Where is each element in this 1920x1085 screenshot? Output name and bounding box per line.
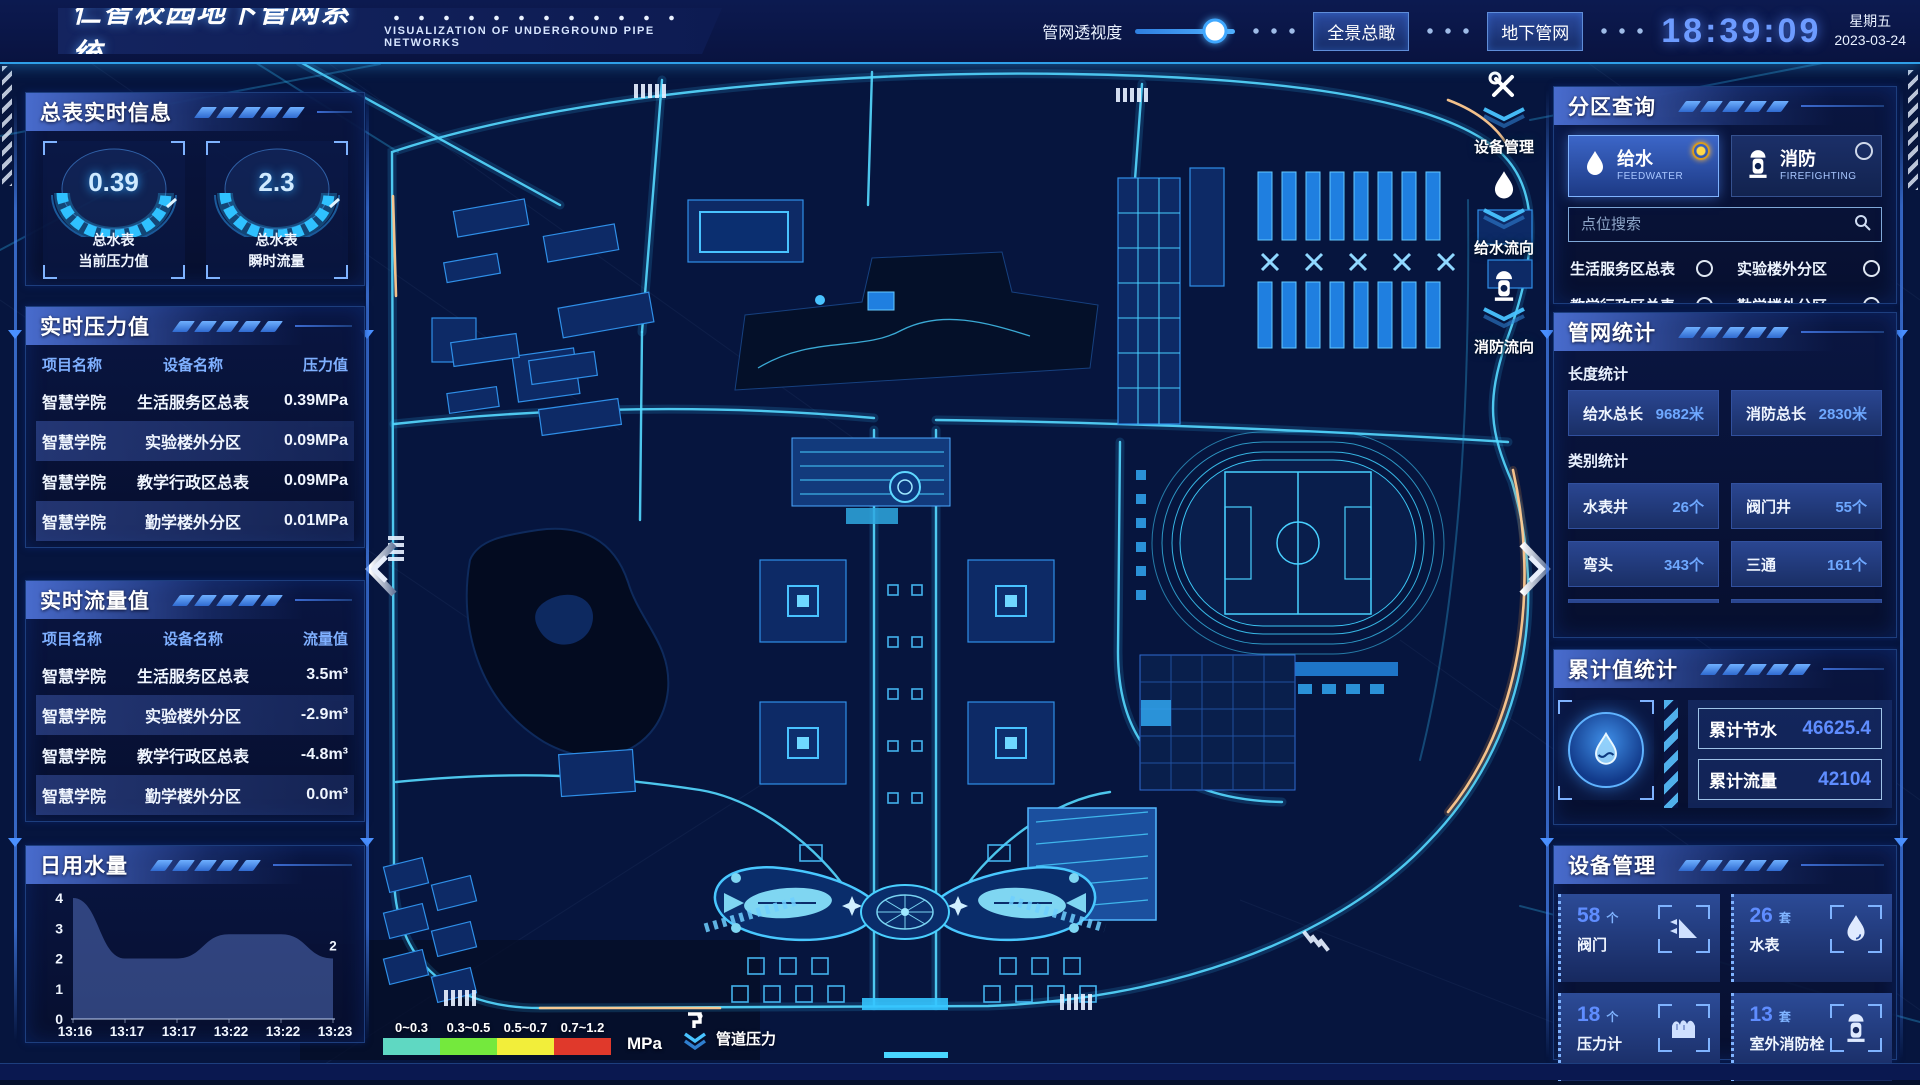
legend-unit: MPa — [627, 1034, 662, 1054]
firefighting-toggle[interactable]: 消防FIREFIGHTING — [1731, 135, 1882, 197]
legend-name: 管道压力 — [716, 1028, 776, 1049]
legend-range-label: 0.7~1.2 — [561, 1020, 605, 1035]
dashboard-root: { "header": { "title": "仁智校园地下管网系统", "su… — [0, 0, 1920, 1080]
hydrant-icon — [1830, 1004, 1882, 1052]
zone-query-panel: 分区查询 给水FEEDWATER 消防FIREFIGHTING 生活服务区总表 … — [1553, 86, 1897, 304]
stat-box: 水表井26个 — [1568, 483, 1719, 529]
valve-icon — [1658, 905, 1710, 953]
legend-range-label: 0.3~0.5 — [447, 1020, 491, 1035]
panel-title: 实时压力值 — [26, 311, 150, 341]
central-plaza — [861, 885, 949, 939]
col-header: 项目名称 — [42, 628, 130, 649]
gauge-label-1: 总水表 — [206, 230, 348, 250]
dots-decor — [1422, 27, 1474, 35]
app-title: 仁智校园地下管网系统 — [72, 0, 370, 73]
svg-text:13:22: 13:22 — [266, 1024, 301, 1036]
stat-box: 阀门井55个 — [1731, 483, 1882, 529]
slashes-decor — [154, 860, 257, 871]
panel-title: 实时流量值 — [26, 585, 150, 615]
svg-text:3: 3 — [55, 920, 63, 936]
gauge-value: 2.3 — [206, 167, 348, 198]
legend-range-label: 0~0.3 — [395, 1020, 428, 1035]
gauge-label-2: 瞬时流量 — [206, 251, 348, 271]
app-title-box: 仁智校园地下管网系统 VISUALIZATION OF UNDERGROUND … — [58, 8, 722, 54]
svg-text:2: 2 — [55, 951, 63, 967]
col-header: 压力值 — [256, 354, 348, 375]
table-row: 智慧学院勤学楼外分区0.01MPa — [36, 501, 354, 541]
length-stats-label: 长度统计 — [1568, 363, 1882, 384]
gauge-pressure: 0.39 总水表当前压力值 — [43, 141, 185, 279]
legend-swatch — [383, 1038, 440, 1055]
gauge-flow: 2.3 总水表瞬时流量 — [206, 141, 348, 279]
svg-text:4: 4 — [55, 890, 63, 906]
legend-swatch — [554, 1038, 611, 1055]
daily-water-chart: 01234 13:1613:1713:1713:2213:2213:23 2 — [34, 884, 352, 1036]
bottom-bar — [0, 1063, 1920, 1080]
slashes-decor — [198, 107, 301, 118]
water-drop-icon — [1583, 149, 1607, 184]
hazard-divider-decor — [1664, 700, 1678, 808]
radio-icon[interactable] — [1863, 297, 1880, 304]
radio-icon[interactable] — [1696, 260, 1713, 277]
panel-title: 分区查询 — [1554, 91, 1656, 121]
table-row: 智慧学院生活服务区总表3.5m³ — [36, 655, 354, 695]
zone-list: 生活服务区总表 实验楼外分区 教学行政区总表 勤学楼外分区 砺学楼外分区 宿舍区… — [1566, 250, 1884, 304]
col-header: 项目名称 — [42, 354, 130, 375]
fountain — [890, 472, 920, 502]
opacity-slider-label: 管网透视度 — [1042, 19, 1122, 43]
svg-text:13:23: 13:23 — [318, 1024, 352, 1036]
gauge-label-1: 总水表 — [43, 230, 185, 250]
table-row: 智慧学院实验楼外分区-2.9m³ — [36, 695, 354, 735]
slashes-decor — [1682, 327, 1785, 338]
chevrons-down-icon — [1481, 107, 1527, 134]
search-input[interactable] — [1579, 215, 1854, 234]
feedwater-toggle[interactable]: 给水FEEDWATER — [1568, 135, 1719, 197]
stat-box: 消防总长2830米 — [1731, 390, 1882, 436]
slashes-decor — [1682, 860, 1785, 871]
stat-box: 弯头343个 — [1568, 541, 1719, 587]
pipe-opacity-slider[interactable] — [1135, 29, 1235, 34]
radio-icon[interactable] — [1863, 260, 1880, 277]
toggle-sublabel: FIREFIGHTING — [1780, 171, 1857, 183]
parking-grid — [1140, 655, 1295, 790]
svg-text:2: 2 — [329, 939, 337, 954]
water-saving-icon-frame — [1558, 700, 1654, 800]
date: 2023-03-24 — [1834, 31, 1906, 50]
table-row: 智慧学院教学行政区总表0.09MPa — [36, 461, 354, 501]
underground-pipes-button[interactable]: 地下管网 — [1487, 12, 1583, 51]
table-row: 智慧学院勤学楼外分区0.0m³ — [36, 775, 354, 815]
svg-text:13:16: 13:16 — [58, 1024, 93, 1036]
dots-decor — [1248, 27, 1300, 35]
zone-list-item[interactable]: 实验楼外分区 — [1735, 250, 1882, 287]
search-box — [1568, 207, 1882, 242]
zone-list-item[interactable]: 生活服务区总表 — [1568, 250, 1715, 287]
dots-decor — [1596, 27, 1648, 35]
hazard-stripe-decor — [1908, 70, 1918, 190]
title-dots-decor — [384, 14, 684, 22]
clock-time: 18:39:09 — [1661, 12, 1821, 51]
feedwater-flow-overlay[interactable]: 给水流向 — [1474, 169, 1534, 258]
table-row: 智慧学院生活服务区总表0.39MPa — [36, 381, 354, 421]
wrench-icon — [1487, 70, 1521, 107]
network-stats-panel: 管网统计 长度统计 给水总长9682米 消防总长2830米 类别统计 水表井26… — [1553, 312, 1897, 638]
table-row: 智慧学院砺学楼外分区2.3m³ — [36, 815, 354, 823]
legend-range-label: 0.5~0.7 — [504, 1020, 548, 1035]
header-controls: 管网透视度 全景总瞰 地下管网 18:39:09 星期五 2023-03-24 — [1042, 0, 1906, 62]
device-card-water-meter[interactable]: 26套 水表 — [1731, 894, 1893, 982]
table-row: 智慧学院教学行政区总表-4.8m³ — [36, 735, 354, 775]
water-drop-icon — [1568, 712, 1644, 788]
realtime-pressure-panel: 实时压力值 项目名称 设备名称 压力值 智慧学院生活服务区总表0.39MPa 智… — [25, 306, 365, 548]
hazard-stripe-decor — [2, 66, 12, 186]
device-card-valve[interactable]: 58个 阀门 — [1558, 894, 1720, 982]
device-management-panel: 设备管理 58个 阀门 26套 水表 18个 压力计 13套 室外消防栓 — [1553, 845, 1897, 1060]
category-stats-label: 类别统计 — [1568, 450, 1882, 471]
zone-list-item[interactable]: 教学行政区总表 — [1568, 287, 1715, 304]
hydrant-icon — [1491, 270, 1517, 307]
panel-title: 管网统计 — [1554, 317, 1656, 347]
col-header: 流量值 — [256, 628, 348, 649]
stat-box-clipped — [1568, 599, 1719, 603]
gauge-value: 0.39 — [43, 167, 185, 198]
hydrant-icon — [1746, 149, 1770, 184]
radio-selected[interactable] — [1692, 142, 1710, 160]
slashes-decor — [176, 595, 279, 606]
map-overlay-toggles: 设备管理 给水流向 消防流向 — [1466, 70, 1542, 369]
toggle-label: 消防 — [1780, 149, 1857, 171]
stat-box: 给水总长9682米 — [1568, 390, 1719, 436]
overlay-label: 消防流向 — [1474, 336, 1534, 357]
pressure-gauge-icon — [1658, 1004, 1710, 1052]
panel-title: 累计值统计 — [1554, 654, 1678, 684]
svg-text:13:17: 13:17 — [110, 1024, 145, 1036]
svg-text:13:17: 13:17 — [162, 1024, 197, 1036]
natatorium — [688, 200, 803, 262]
gate — [862, 998, 948, 1010]
water-meter-icon — [1830, 905, 1882, 953]
pressure-legend: 0~0.3 0.3~0.5 0.5~0.7 0.7~1.2 MPa 管道压力 — [383, 1010, 776, 1055]
realtime-flow-panel: 实时流量值 项目名称 设备名称 流量值 智慧学院生活服务区总表3.5m³ 智慧学… — [25, 580, 365, 822]
legend-swatch — [440, 1038, 497, 1055]
overlay-label: 给水流向 — [1474, 237, 1534, 258]
zone-list-item[interactable]: 勤学楼外分区 — [1735, 287, 1882, 304]
gauge-label-2: 当前压力值 — [43, 251, 185, 271]
water-drop-icon — [1490, 169, 1518, 208]
legend-swatch — [497, 1038, 554, 1055]
table-row: 智慧学院实验楼外分区0.09MPa — [36, 421, 354, 461]
stat-box: 三通161个 — [1731, 541, 1882, 587]
svg-text:1: 1 — [55, 981, 63, 997]
chevrons-down-icon — [1481, 208, 1527, 235]
device-manage-overlay[interactable]: 设备管理 — [1474, 70, 1534, 157]
total-row: 累计节水46625.4 — [1698, 708, 1882, 749]
svg-text:13:22: 13:22 — [214, 1024, 249, 1036]
panel-title: 日用水量 — [26, 850, 128, 880]
total-row: 累计流量42104 — [1698, 759, 1882, 800]
col-header: 设备名称 — [130, 354, 256, 375]
chevrons-down-icon — [1481, 307, 1527, 334]
radio-unselected[interactable] — [1855, 142, 1873, 160]
overlay-label: 设备管理 — [1474, 136, 1534, 157]
col-header: 设备名称 — [130, 628, 256, 649]
table-row: 智慧学院砺学楼外分区0.00MPa — [36, 541, 354, 549]
panel-title: 总表实时信息 — [26, 97, 172, 127]
meter-info-panel: 总表实时信息 0.39 总水表当前压力值 2.3 总水表瞬时流量 — [25, 92, 365, 286]
slashes-decor — [1682, 101, 1785, 112]
toggle-sublabel: FEEDWATER — [1617, 171, 1683, 183]
pipe-pressure-icon — [680, 1010, 710, 1055]
overview-button[interactable]: 全景总瞰 — [1313, 12, 1409, 51]
top-header: 仁智校园地下管网系统 VISUALIZATION OF UNDERGROUND … — [0, 0, 1920, 64]
search-icon[interactable] — [1854, 214, 1871, 236]
daily-water-panel: 日用水量 01234 13:1613:1713:1713:2213:2213:2… — [25, 845, 365, 1043]
toggle-label: 给水 — [1617, 149, 1683, 171]
app-subtitle: VISUALIZATION OF UNDERGROUND PIPE NETWOR… — [384, 25, 722, 49]
cumulative-stats-panel: 累计值统计 累计节水46625.4 累计流量42104 — [1553, 649, 1897, 825]
slashes-decor — [1704, 664, 1807, 675]
weekday: 星期五 — [1849, 12, 1891, 31]
slider-thumb[interactable] — [1203, 19, 1228, 44]
fire-flow-overlay[interactable]: 消防流向 — [1474, 270, 1534, 357]
stat-box-clipped — [1731, 599, 1882, 603]
panel-title: 设备管理 — [1554, 850, 1656, 880]
radio-icon[interactable] — [1696, 297, 1713, 304]
slashes-decor — [176, 321, 279, 332]
